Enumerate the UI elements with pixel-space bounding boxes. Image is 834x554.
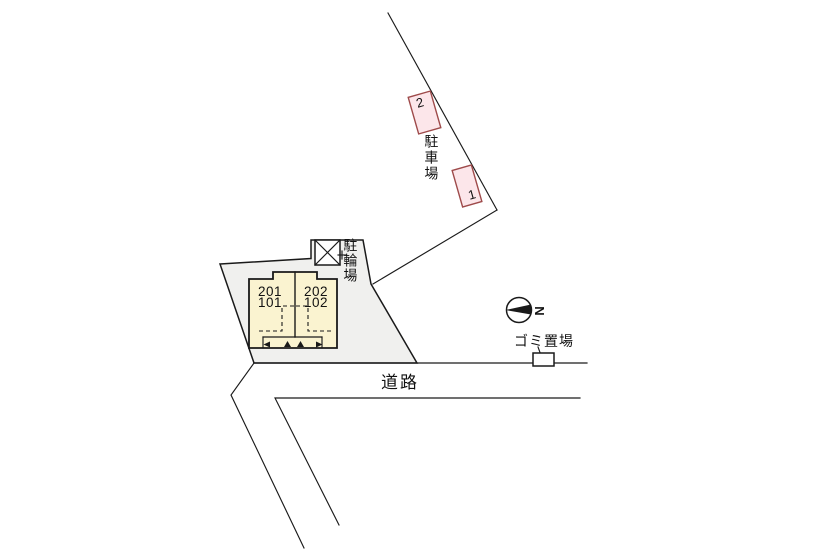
compass-north-label: N: [531, 303, 547, 319]
bicycle-parking-label: 駐輪場: [342, 238, 357, 283]
garbage-box: [533, 353, 554, 366]
road-inner-edge: [275, 398, 580, 525]
site-plan: 駐車場 駐輪場 201 101 202 102 2 1 道路 ゴミ置場 N: [0, 0, 834, 554]
unit-201-label: 201 101: [250, 287, 290, 308]
garbage-area-label: ゴミ置場: [514, 334, 574, 349]
unit-201-lower: 101: [258, 295, 282, 310]
road-label: 道路: [381, 374, 419, 393]
boundary-line-upper: [388, 13, 497, 210]
unit-202-lower: 102: [304, 295, 328, 310]
road-outer-edge: [231, 363, 304, 548]
site-plan-drawing: [0, 0, 834, 554]
parking-area-label: 駐車場: [423, 134, 438, 182]
boundary-line-connector: [373, 210, 497, 284]
unit-202-label: 202 102: [296, 287, 336, 308]
